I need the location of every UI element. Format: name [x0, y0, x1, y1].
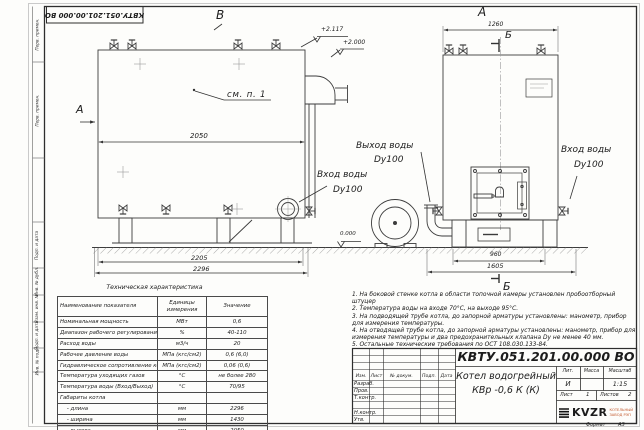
- frame-strip-label: Подп. и дата: [32, 322, 44, 348]
- table-header-units: Единицы измерения: [158, 297, 207, 317]
- tech-table-title: Техническая характеристика: [57, 285, 252, 291]
- elevation-mark-2117: +2.117: [321, 27, 343, 33]
- top-stamp-number: КВТУ.051.201.00.000 ВО: [46, 6, 143, 23]
- water-outlet-label-line1: Выход воды: [356, 142, 413, 151]
- titleblock-row-label: [354, 402, 380, 409]
- table-cell-value: °С: [158, 371, 207, 382]
- table-row: Номинальная мощностьМВт0,6: [58, 317, 268, 328]
- furnace-door: [471, 167, 529, 219]
- table-cell-value: МПа (кгс/см2): [158, 349, 207, 360]
- table-row: Температура воды (Вход/Выход)°С70/95: [58, 382, 268, 393]
- table-cell-name: Диапазон рабочего регулирования: [58, 327, 158, 338]
- dim-960-label: 960: [490, 252, 501, 258]
- dimension-lines: [95, 26, 577, 277]
- water-inlet-right-label-line1: Вход воды: [561, 146, 611, 155]
- table-cell-value: не более 280: [207, 371, 268, 382]
- titleblock-scale-header: Масштаб: [603, 370, 637, 375]
- frame-strip-label: Инв. № дубл.: [32, 268, 44, 295]
- titleblock-col-header: Дата: [438, 369, 455, 379]
- view-b-label: В: [216, 9, 224, 21]
- titleblock-product-name-line2: КВр -0,6 К (К): [456, 386, 556, 396]
- dim-2205-label: 2205: [191, 255, 208, 262]
- table-cell-value: мм: [158, 404, 207, 415]
- table-cell-value: 70/95: [207, 382, 268, 393]
- note-item: 1. На боковой стенке котла в области топ…: [352, 292, 638, 306]
- water-inlet-right-label-line2: Dy100: [574, 161, 603, 170]
- table-header-value: Значение: [207, 297, 268, 317]
- dim-2050-label: 2050: [190, 133, 208, 140]
- frame-strip-label: Инв. № подл.: [32, 348, 44, 372]
- table-row: - ширинамм1430: [58, 415, 268, 426]
- water-inlet-left-label-line2: Dy100: [333, 186, 362, 195]
- kvzr-logo-subtext-line2: ЗАВОД РЭП: [609, 413, 633, 418]
- table-cell-name: - высота: [58, 425, 158, 430]
- table-header-row: Наименование показателя Единицы измерени…: [58, 297, 268, 317]
- kvzr-logo-icon: [558, 407, 570, 419]
- titleblock-sheet-value: 1: [586, 393, 590, 399]
- frame-strip-label: Перв. примен.: [32, 6, 44, 62]
- table-cell-value: °С: [158, 382, 207, 393]
- titleblock-sheet-label: Лист: [560, 393, 573, 398]
- table-row: Рабочее давление водыМПа (кгс/см2)0,6 (6…: [58, 349, 268, 360]
- titleblock-row-label: Н.контр.: [354, 409, 380, 416]
- titleblock-lit-value: И: [556, 381, 580, 388]
- dim-1260-label: 1260: [488, 22, 503, 28]
- table-cell-name: Габариты котла: [58, 393, 158, 404]
- kvzr-logo: KVZR КОТЕЛЬНЫЙ ЗАВОД РЭП: [558, 403, 636, 422]
- frame-strip-label: Подп. и дата: [32, 222, 44, 268]
- water-inlet-left-label-line1: Вход воды: [317, 171, 367, 180]
- table-cell-name: Гидравлическое сопротивление котла: [58, 360, 158, 371]
- kvzr-logo-text: KVZR: [572, 406, 607, 419]
- section-b-bottom-label: Б: [503, 281, 511, 292]
- table-cell-value: [207, 393, 268, 404]
- titleblock-scale-value: 1:15: [603, 381, 637, 388]
- titleblock-sheets-label: Листов: [600, 393, 619, 398]
- section-a-arrow-label: А: [76, 104, 84, 115]
- table-cell-name: Рабочее давление воды: [58, 349, 158, 360]
- titleblock-row-label: Пров.: [354, 388, 380, 395]
- titleblock-sheets-value: 2: [628, 393, 632, 399]
- table-cell-value: мм: [158, 425, 207, 430]
- section-b-top-label: Б: [505, 31, 512, 41]
- table-row: Габариты котла: [58, 393, 268, 404]
- water-outlet-label-line2: Dy100: [374, 156, 403, 165]
- note-item: 2. Температура воды на входе 70°С, на вы…: [352, 306, 638, 313]
- table-cell-value: 0,6: [207, 317, 268, 328]
- left-view-drawing: [98, 40, 348, 243]
- view-a-label: А: [478, 6, 486, 18]
- table-cell-value: 0,6 (6,0): [207, 349, 268, 360]
- format-label: Формат: [586, 424, 605, 429]
- table-header-name: Наименование показателя: [58, 297, 158, 317]
- right-view-drawing: [433, 37, 568, 247]
- table-cell-value: МВт: [158, 317, 207, 328]
- titleblock-col-header: Лист: [370, 369, 383, 379]
- titleblock-row-label: Разраб.: [354, 381, 380, 388]
- engineering-drawing-page: { "frame": { "left_strip": ["Перв. приме…: [0, 0, 644, 430]
- table-cell-value: м3/ч: [158, 338, 207, 349]
- titleblock-product-name-line1: Котел водогрейный: [456, 372, 556, 382]
- table-row: - высотамм2050: [58, 425, 268, 430]
- table-cell-name: - ширина: [58, 415, 158, 426]
- table-cell-name: - длина: [58, 404, 158, 415]
- table-cell-value: 40-110: [207, 327, 268, 338]
- table-row: Диапазон рабочего регулирования%40-110: [58, 327, 268, 338]
- note-item: 4. На отводящей трубе котла, до запорной…: [352, 328, 638, 342]
- table-cell-name: Расход воды: [58, 338, 158, 349]
- table-row: Гидравлическое сопротивление котлаМПа (к…: [58, 360, 268, 371]
- elevation-mark-zero: 0.000: [340, 232, 356, 238]
- see-note-label: см. п. 1: [227, 91, 266, 100]
- table-cell-value: 2296: [207, 404, 268, 415]
- frame-strip-label: Перв. примен.: [32, 62, 44, 158]
- annotation-marks: [80, 24, 577, 283]
- table-cell-value: 20: [207, 338, 268, 349]
- table-row: Температура уходящих газов°Сне более 280: [58, 371, 268, 382]
- table-cell-name: Номинальная мощность: [58, 317, 158, 328]
- tech-table-body: Номинальная мощностьМВт0,6Диапазон рабоч…: [58, 317, 268, 430]
- note-item: 3. На подводящей трубе котла, до запорно…: [352, 314, 638, 328]
- ground-line: [92, 248, 588, 254]
- table-cell-value: 0,06 (0,6): [207, 360, 268, 371]
- titleblock-col-header: Изм.: [352, 369, 370, 379]
- titleblock-col-header: Подп.: [420, 369, 438, 379]
- table-cell-value: %: [158, 327, 207, 338]
- table-cell-value: МПа (кгс/см2): [158, 360, 207, 371]
- notes-list: 1. На боковой стенке котла в области топ…: [352, 292, 638, 350]
- format-value: А3: [618, 423, 625, 428]
- table-row: - длинамм2296: [58, 404, 268, 415]
- table-cell-value: 2050: [207, 425, 268, 430]
- table-cell-value: мм: [158, 415, 207, 426]
- tech-table: Наименование показателя Единицы измерени…: [57, 296, 268, 430]
- elevation-mark-2000: +2.000: [343, 40, 365, 46]
- table-row: Расход водым3/ч20: [58, 338, 268, 349]
- table-cell-value: 1430: [207, 415, 268, 426]
- dim-2296-label: 2296: [193, 266, 210, 273]
- titleblock-lit-header: Лит.: [556, 370, 580, 375]
- titleblock-row-label: Т.контр.: [354, 395, 380, 402]
- frame-strip-label: Взам. инв. №: [32, 295, 44, 322]
- titleblock-mass-header: Масса: [580, 370, 603, 375]
- dim-1605-label: 1605: [487, 263, 504, 270]
- titleblock-row-label: Утв.: [354, 416, 380, 423]
- table-cell-value: [158, 393, 207, 404]
- titleblock-col-header: № докум.: [383, 369, 420, 379]
- table-cell-name: Температура воды (Вход/Выход): [58, 382, 158, 393]
- table-cell-name: Температура уходящих газов: [58, 371, 158, 382]
- titleblock-doc-number: КВТУ.051.201.00.000 ВО: [457, 351, 635, 364]
